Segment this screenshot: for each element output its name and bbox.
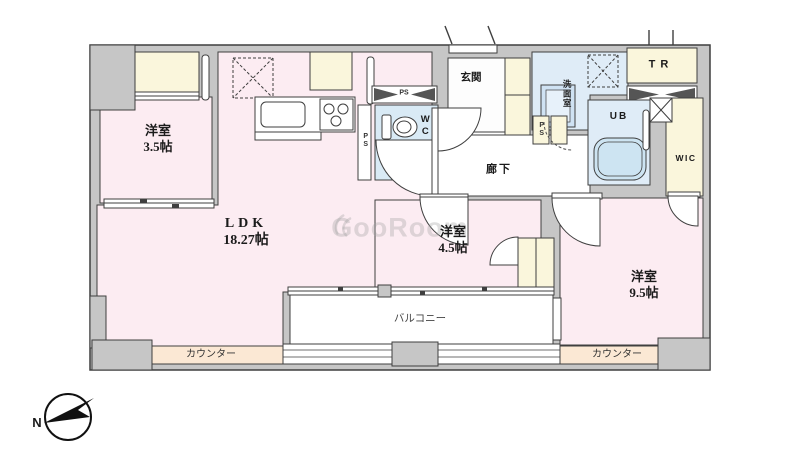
room-west-large [552, 192, 703, 345]
door-leaf [432, 108, 438, 196]
label-toilet: WC [419, 114, 431, 138]
label-room-west-mid: 洋室 4.5帖 [438, 224, 467, 256]
corner-block-bottom-right [658, 338, 710, 370]
label-washroom: 洗面室 [562, 80, 572, 109]
bath-door [643, 110, 649, 150]
ps-box [551, 116, 567, 144]
compass-north-label: N [32, 415, 41, 431]
shoe-cabinet [505, 58, 530, 95]
kitchen-storage [310, 52, 352, 90]
label-ps-by-washroom: PS [537, 122, 546, 138]
label-room-west-large: 洋室 9.5帖 [629, 269, 658, 301]
label-entrance: 玄関 [461, 73, 482, 86]
front-door-opening [449, 45, 497, 53]
stove [320, 99, 353, 130]
label-counter-left: カウンター [186, 349, 236, 361]
label-room-west-small: 洋室 3.5帖 [143, 123, 172, 155]
balcony-divider [392, 342, 438, 366]
closet-west-small [135, 52, 199, 92]
compass-icon [44, 394, 94, 440]
corner-block-top-left [90, 45, 135, 110]
shoe-cabinet [505, 95, 530, 135]
label-counter-right: カウンター [592, 349, 642, 361]
toilet-tank [382, 115, 391, 139]
kitchen-sink [261, 102, 305, 127]
label-trunk-room: TR [649, 58, 674, 71]
label-hallway: 廊下 [486, 163, 512, 176]
label-ps-above-wc: PS [399, 90, 408, 99]
label-ps-beside-wc: PS [361, 133, 370, 149]
wall-pier [378, 285, 391, 297]
balcony-area [283, 285, 560, 366]
corner-block-bottom-left [92, 340, 152, 370]
label-room-ldk: LDK 18.27帖 [223, 215, 269, 249]
side-window [553, 298, 561, 340]
label-unit-bath: UB [610, 111, 628, 123]
label-wic: WIC [675, 153, 696, 163]
label-balcony: バルコニー [394, 313, 446, 326]
front-door-swing [445, 26, 452, 44]
floor-plan: GooRoom 洋室 3.5帖 LDK 18.27帖 洋室 4.5帖 洋室 9.… [0, 0, 787, 465]
door-pocket [202, 55, 209, 100]
